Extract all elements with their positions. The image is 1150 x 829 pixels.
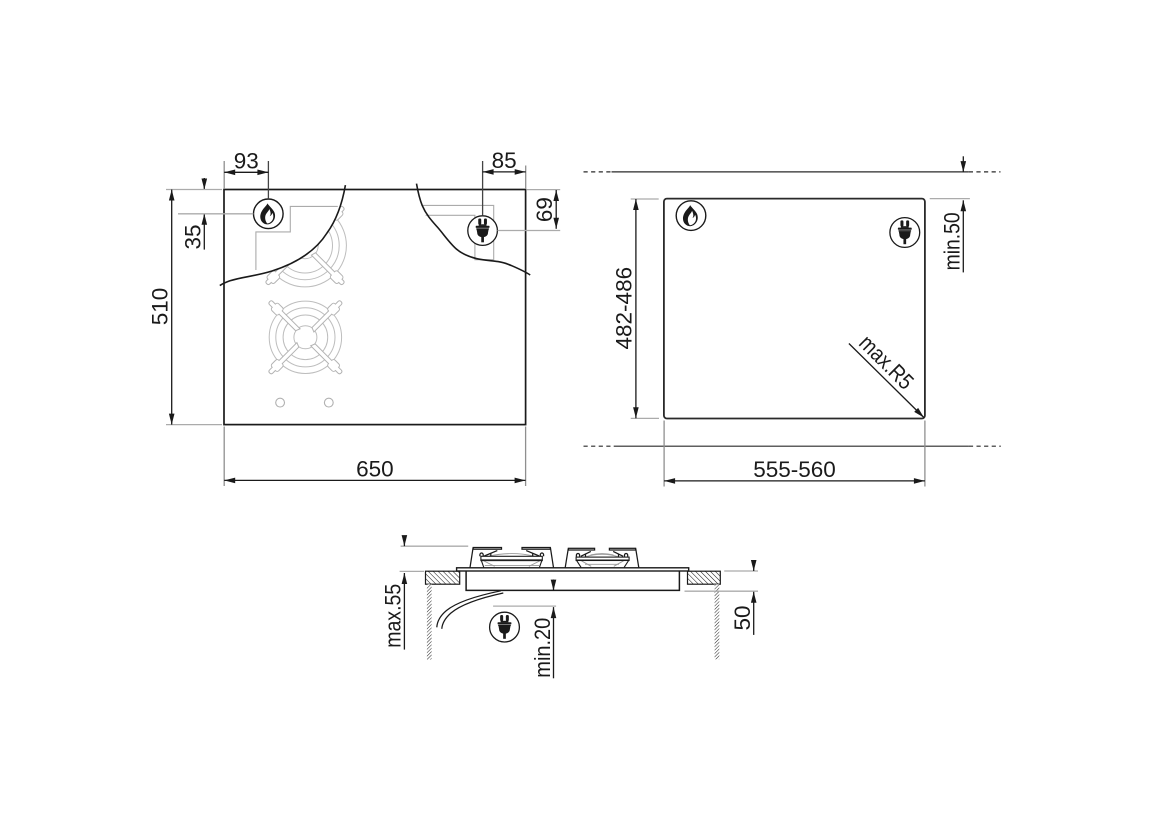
svg-text:93: 93 [234, 149, 259, 174]
svg-text:69: 69 [532, 197, 557, 222]
svg-text:50: 50 [730, 605, 755, 630]
svg-text:35: 35 [181, 224, 206, 249]
svg-text:510: 510 [147, 288, 172, 326]
svg-text:482-486: 482-486 [612, 267, 637, 350]
svg-text:85: 85 [492, 148, 517, 173]
svg-text:555-560: 555-560 [753, 457, 836, 482]
svg-text:min.20: min.20 [530, 618, 555, 678]
svg-text:min.50: min.50 [939, 212, 964, 270]
svg-text:650: 650 [356, 457, 394, 482]
svg-text:max.55: max.55 [380, 584, 405, 648]
